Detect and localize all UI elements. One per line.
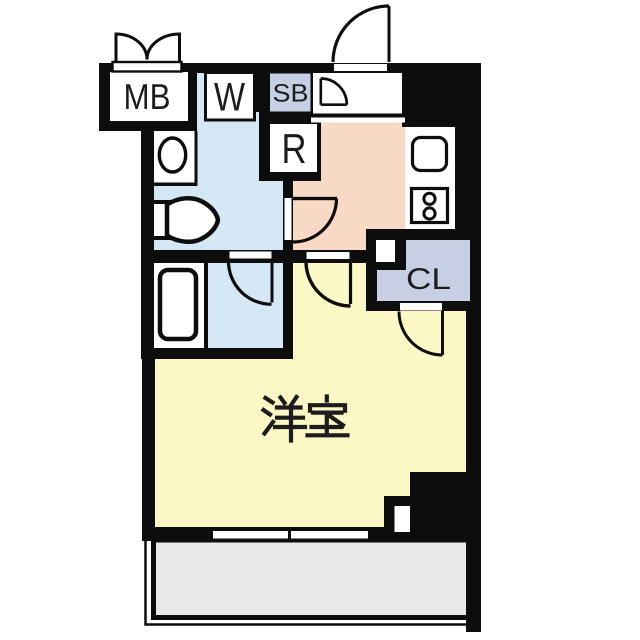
svg-text:CL: CL bbox=[406, 263, 451, 296]
svg-text:R: R bbox=[282, 125, 307, 172]
svg-text:W: W bbox=[214, 76, 245, 120]
svg-text:MB: MB bbox=[124, 76, 171, 117]
svg-text:SB: SB bbox=[273, 80, 309, 108]
